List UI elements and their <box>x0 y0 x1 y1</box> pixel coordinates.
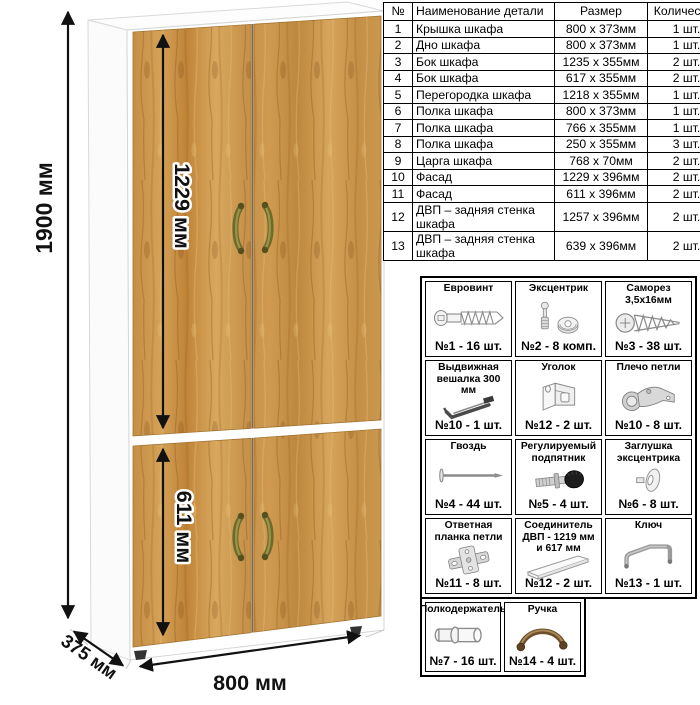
hardware-item-qty: №12 - 2 шт. <box>525 419 592 434</box>
table-row: 13ДВП – задняя стенка шкафа639 x 396мм2 … <box>384 231 700 260</box>
hardware-item-qty: №4 - 44 шт. <box>435 498 502 513</box>
table-row: 7Полка шкафа766 x 355мм1 шт. <box>384 120 700 137</box>
cell-size: 1218 x 355мм <box>555 87 648 104</box>
hardware-item-title: Заглушка эксцентрика <box>608 441 689 464</box>
hardware-item-title: Гвоздь <box>451 441 487 453</box>
width-dim-label: 800 мм <box>213 671 287 695</box>
cell-size: 766 x 355мм <box>555 120 648 137</box>
hardware-item-title: Саморез 3,5х16мм <box>608 283 689 306</box>
hardware-item: Ответная планка петли№11 - 8 шт. <box>425 518 512 594</box>
cell-name: Бок шкафа <box>413 54 555 71</box>
wardrobe-figure: 1900 мм 1229 мм 611 мм 800 мм 375 мм <box>0 0 412 700</box>
hardware-item-title: Регулируемый подпятник <box>518 441 599 464</box>
cell-num: 6 <box>384 103 413 120</box>
parts-table-head: № Наименование детали Размер Количество <box>384 3 700 21</box>
table-row: 9Царга шкафа768 x 70мм2 шт. <box>384 153 700 170</box>
table-row: 5Перегородка шкафа1218 x 355мм1 шт. <box>384 87 700 104</box>
cell-size: 800 x 373мм <box>555 37 648 54</box>
wardrobe-svg: 1900 мм 1229 мм 611 мм 800 мм 375 мм <box>0 0 412 700</box>
gvozd-icon <box>428 453 509 499</box>
cabinet-side-panel <box>88 20 130 660</box>
cell-name: Дно шкафа <box>413 37 555 54</box>
cell-size: 800 x 373мм <box>555 103 648 120</box>
hardware-item-qty: №1 - 16 шт. <box>435 340 502 355</box>
cell-num: 3 <box>384 54 413 71</box>
cell-num: 9 <box>384 153 413 170</box>
cell-name: Перегородка шкафа <box>413 87 555 104</box>
cell-qty: 2 шт. <box>648 186 700 203</box>
ekstsentrik-icon <box>518 295 599 341</box>
right-foot <box>350 626 362 635</box>
podpyatnik-icon <box>518 464 599 498</box>
hardware-item: Заглушка эксцентрика№6 - 8 шт. <box>605 439 692 515</box>
cell-name: Полка шкафа <box>413 120 555 137</box>
hardware-item-qty: №10 - 8 шт. <box>615 419 682 434</box>
hardware-item-qty: №13 - 1 шт. <box>615 577 682 592</box>
cell-name: ДВП – задняя стенка шкафа <box>413 231 555 260</box>
hardware-item-qty: №10 - 1 шт. <box>435 419 502 434</box>
hardware-item-title: Полкодержатель <box>420 604 506 616</box>
header-size: Размер <box>555 3 648 21</box>
cell-num: 1 <box>384 21 413 38</box>
hardware-item: Регулируемый подпятник№5 - 4 шт. <box>515 439 602 515</box>
cell-qty: 1 шт. <box>648 21 700 38</box>
cell-num: 8 <box>384 136 413 153</box>
cell-qty: 2 шт. <box>648 70 700 87</box>
cell-name: ДВП – задняя стенка шкафа <box>413 202 555 231</box>
cell-qty: 1 шт. <box>648 87 700 104</box>
polkoderzhatel-icon <box>428 616 498 656</box>
header-num: № <box>384 3 413 21</box>
cell-name: Бок шкафа <box>413 70 555 87</box>
hardware-item: Эксцентрик№2 - 8 комп. <box>515 281 602 357</box>
hardware-grid: Евровинт№1 - 16 шт.Эксцентрик№2 - 8 комп… <box>420 276 697 599</box>
table-row: 1Крышка шкафа800 x 373мм1 шт. <box>384 21 700 38</box>
veshalka-icon <box>428 397 509 420</box>
hardware-item-qty: №3 - 38 шт. <box>615 340 682 355</box>
cell-num: 10 <box>384 169 413 186</box>
hardware-item-qty: №5 - 4 шт. <box>528 498 588 513</box>
cell-name: Полка шкафа <box>413 103 555 120</box>
hardware-item-title: Ключ <box>635 520 662 532</box>
hardware-item-title: Евровинт <box>444 283 494 295</box>
hardware-item-title: Уголок <box>541 362 575 374</box>
cell-size: 768 x 70мм <box>555 153 648 170</box>
cell-size: 617 x 355мм <box>555 70 648 87</box>
cell-qty: 2 шт. <box>648 169 700 186</box>
hardware-item-title: Плечо петли <box>617 362 681 374</box>
hardware-item-qty: №2 - 8 комп. <box>521 340 596 355</box>
zaglushka-icon <box>608 464 689 498</box>
cell-name: Полка шкафа <box>413 136 555 153</box>
wood-grain-overlay <box>133 16 381 647</box>
cell-size: 1229 x 396мм <box>555 169 648 186</box>
left-foot <box>134 650 147 660</box>
upper-door-dim-label: 1229 мм <box>170 163 194 249</box>
hardware-item: Уголок№12 - 2 шт. <box>515 360 602 436</box>
hardware-item-qty: №6 - 8 шт. <box>618 498 678 513</box>
table-header-row: № Наименование детали Размер Количество <box>384 3 700 21</box>
hardware-item-title: Эксцентрик <box>529 283 588 295</box>
cell-size: 800 x 373мм <box>555 21 648 38</box>
ruchka-icon <box>507 616 578 656</box>
cell-num: 5 <box>384 87 413 104</box>
eurovint-icon <box>428 295 509 341</box>
hardware-item: Соединитель ДВП - 1219 мм и 617 мм№12 - … <box>515 518 602 594</box>
cell-qty: 1 шт. <box>648 103 700 120</box>
cell-name: Фасад <box>413 169 555 186</box>
cell-size: 250 x 355мм <box>555 136 648 153</box>
soedinitel-icon <box>518 555 599 578</box>
table-row: 2Дно шкафа800 x 373мм1 шт. <box>384 37 700 54</box>
hardware-item-qty: №7 - 16 шт. <box>429 655 496 670</box>
hardware-item-qty: №12 - 2 шт. <box>525 577 592 592</box>
table-row: 3Бок шкафа1235 x 355мм2 шт. <box>384 54 700 71</box>
cell-qty: 1 шт. <box>648 37 700 54</box>
cell-size: 611 x 396мм <box>555 186 648 203</box>
cell-num: 11 <box>384 186 413 203</box>
cell-size: 1257 x 396мм <box>555 202 648 231</box>
plecho-petli-icon <box>608 374 689 420</box>
parts-table-body: 1Крышка шкафа800 x 373мм1 шт.2Дно шкафа8… <box>384 21 700 261</box>
cell-size: 639 x 396мм <box>555 231 648 260</box>
height-dim-label: 1900 мм <box>31 162 57 254</box>
ugolok-icon <box>518 374 599 420</box>
table-row: 12ДВП – задняя стенка шкафа1257 x 396мм2… <box>384 202 700 231</box>
cell-size: 1235 x 355мм <box>555 54 648 71</box>
cell-num: 12 <box>384 202 413 231</box>
table-row: 4Бок шкафа617 x 355мм2 шт. <box>384 70 700 87</box>
hardware-item-qty: №11 - 8 шт. <box>435 577 502 592</box>
parts-table: № Наименование детали Размер Количество … <box>383 2 700 261</box>
cell-name: Царга шкафа <box>413 153 555 170</box>
hardware-item: Саморез 3,5х16мм№3 - 38 шт. <box>605 281 692 357</box>
hardware-item: Полкодержатель№7 - 16 шт. <box>425 602 501 672</box>
table-row: 10Фасад1229 x 396мм2 шт. <box>384 169 700 186</box>
samorez-icon <box>608 306 689 340</box>
hardware-item: Ручка№14 - 4 шт. <box>504 602 581 672</box>
cell-name: Фасад <box>413 186 555 203</box>
header-qty: Количество <box>648 3 700 21</box>
cell-num: 13 <box>384 231 413 260</box>
table-row: 11Фасад611 x 396мм2 шт. <box>384 186 700 203</box>
cell-num: 4 <box>384 70 413 87</box>
cell-qty: 3 шт. <box>648 136 700 153</box>
cell-qty: 2 шт. <box>648 153 700 170</box>
cell-qty: 2 шт. <box>648 202 700 231</box>
cell-name: Крышка шкафа <box>413 21 555 38</box>
hardware-item: Евровинт№1 - 16 шт. <box>425 281 512 357</box>
hardware-grid-extra: Полкодержатель№7 - 16 шт.Ручка№14 - 4 шт… <box>420 597 586 677</box>
hardware-item: Ключ№13 - 1 шт. <box>605 518 692 594</box>
hardware-item: Выдвижная вешалка 300 мм№10 - 1 шт. <box>425 360 512 436</box>
table-row: 6Полка шкафа800 x 373мм1 шт. <box>384 103 700 120</box>
klyuch-icon <box>608 532 689 578</box>
hardware-item: Плечо петли№10 - 8 шт. <box>605 360 692 436</box>
header-name: Наименование детали <box>413 3 555 21</box>
cell-qty: 2 шт. <box>648 54 700 71</box>
cell-qty: 2 шт. <box>648 231 700 260</box>
cell-num: 2 <box>384 37 413 54</box>
hardware-item: Гвоздь№4 - 44 шт. <box>425 439 512 515</box>
cell-qty: 1 шт. <box>648 120 700 137</box>
table-row: 8Полка шкафа250 x 355мм3 шт. <box>384 136 700 153</box>
hardware-item-qty: №14 - 4 шт. <box>509 655 576 670</box>
lower-door-dim-label: 611 мм <box>172 491 196 563</box>
hardware-item-title: Ручка <box>528 604 557 616</box>
hardware-item-title: Ответная планка петли <box>428 520 509 543</box>
otvetnaya-planka-icon <box>428 543 509 577</box>
cell-num: 7 <box>384 120 413 137</box>
